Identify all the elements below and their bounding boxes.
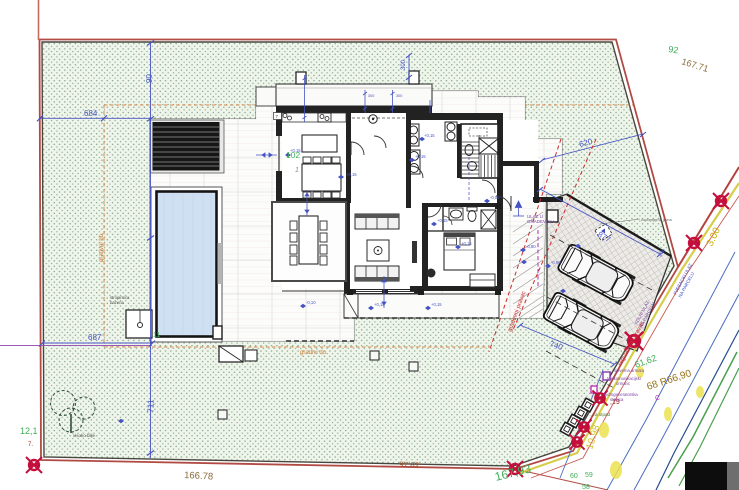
- svg-text:90: 90: [145, 74, 154, 83]
- svg-text:C: C: [655, 395, 660, 402]
- svg-text:gradivi do.: gradivi do.: [300, 350, 328, 356]
- svg-text:12,1: 12,1: [20, 426, 38, 436]
- svg-text:711: 711: [146, 399, 156, 413]
- svg-text:+0,15: +0,15: [437, 218, 448, 223]
- svg-text:-0,05: -0,05: [490, 195, 500, 200]
- svg-text:60: 60: [570, 473, 578, 480]
- svg-text:sjeverna armara: sjeverna armara: [614, 368, 645, 373]
- svg-text:+0,15: +0,15: [374, 302, 385, 307]
- svg-text:+0,15: +0,15: [415, 154, 426, 159]
- svg-text:11: 11: [153, 332, 160, 339]
- svg-text:+0,15: +0,15: [461, 241, 472, 246]
- svg-text:+0,15: +0,15: [346, 172, 357, 177]
- svg-text:bazena: bazena: [110, 300, 124, 305]
- svg-text:166.78: 166.78: [184, 470, 214, 483]
- svg-text:...za otpad: ...za otpad: [589, 412, 611, 417]
- svg-text:+0,15: +0,15: [431, 302, 442, 307]
- svg-text:vodomjerna jama: vodomjerna jama: [641, 217, 672, 222]
- svg-text:visoko bilje: visoko bilje: [73, 433, 96, 438]
- svg-text:gradvni bb.: gradvni bb.: [99, 232, 105, 262]
- svg-text:1: 1: [295, 167, 299, 174]
- svg-text:687: 687: [88, 333, 102, 342]
- svg-text:97.62: 97.62: [399, 460, 420, 470]
- svg-text:59: 59: [585, 472, 593, 479]
- svg-text:+0,15: +0,15: [424, 133, 435, 138]
- svg-text:ormaric: ormaric: [616, 381, 630, 386]
- svg-text:-0,90: -0,90: [526, 244, 536, 249]
- svg-text:-0,90: -0,90: [551, 260, 561, 265]
- svg-text:-0,10: -0,10: [306, 300, 316, 305]
- svg-text:102: 102: [286, 150, 300, 160]
- svg-text:300: 300: [396, 94, 402, 98]
- svg-text:stanica: stanica: [610, 397, 624, 402]
- svg-text:300: 300: [368, 94, 374, 98]
- svg-text:58: 58: [582, 484, 590, 490]
- svg-text:92: 92: [668, 44, 679, 55]
- svg-text:7.: 7.: [28, 442, 33, 448]
- svg-text:GRADEVINU: GRADEVINU: [527, 219, 554, 224]
- svg-text:300: 300: [401, 59, 407, 70]
- svg-text:684: 684: [84, 109, 98, 118]
